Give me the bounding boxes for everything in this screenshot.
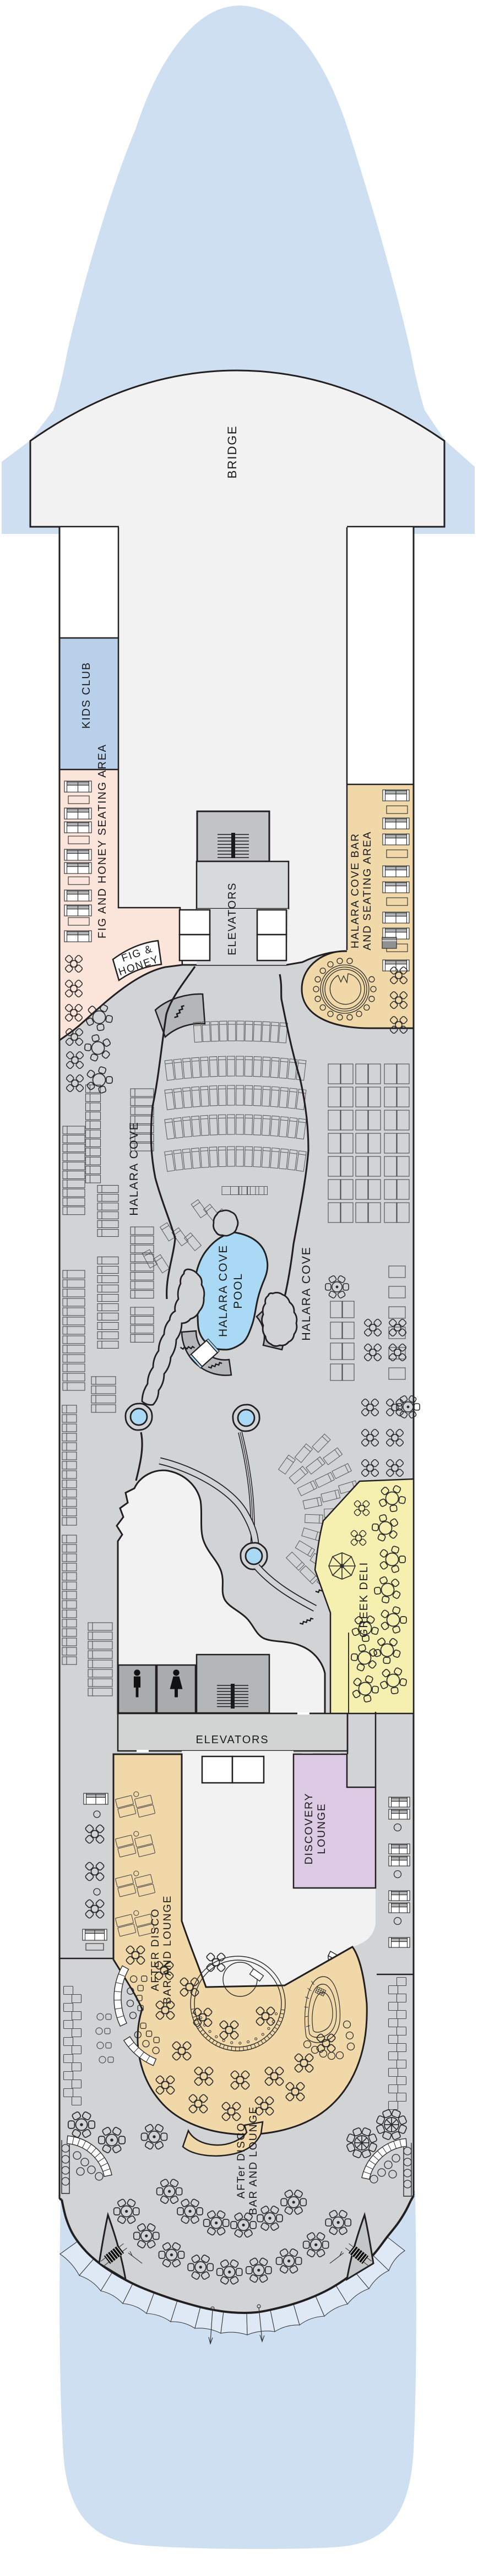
svg-text:KIDS CLUB: KIDS CLUB xyxy=(80,662,93,729)
svg-text:HALARA COVE: HALARA COVE xyxy=(300,1246,313,1341)
svg-text:HALARA COVE: HALARA COVE xyxy=(127,1121,140,1216)
svg-text:BAR AND LOUNGE: BAR AND LOUNGE xyxy=(247,2106,259,2215)
svg-text:ELEVATORS: ELEVATORS xyxy=(226,882,238,956)
svg-text:FIG AND HONEY SEATING AREA: FIG AND HONEY SEATING AREA xyxy=(96,744,108,938)
svg-text:AFTER DISCO: AFTER DISCO xyxy=(149,1908,161,1991)
svg-text:AFTer DISCO: AFTer DISCO xyxy=(235,2122,247,2199)
svg-text:POOL: POOL xyxy=(232,1273,245,1309)
svg-text:GREEK DELI: GREEK DELI xyxy=(358,1562,370,1638)
svg-text:HALARA COVE BAR: HALARA COVE BAR xyxy=(349,833,361,948)
svg-text:ELEVATORS: ELEVATORS xyxy=(196,1734,269,1746)
svg-text:BAR AND LOUNGE: BAR AND LOUNGE xyxy=(161,1895,173,2005)
svg-text:HALARA COVE: HALARA COVE xyxy=(217,1245,230,1337)
svg-text:AND SEATING AREA: AND SEATING AREA xyxy=(361,831,373,951)
svg-text:BRIDGE: BRIDGE xyxy=(225,425,239,478)
svg-text:LOUNGE: LOUNGE xyxy=(316,1803,328,1854)
svg-text:DISCOVERY: DISCOVERY xyxy=(303,1793,315,1865)
